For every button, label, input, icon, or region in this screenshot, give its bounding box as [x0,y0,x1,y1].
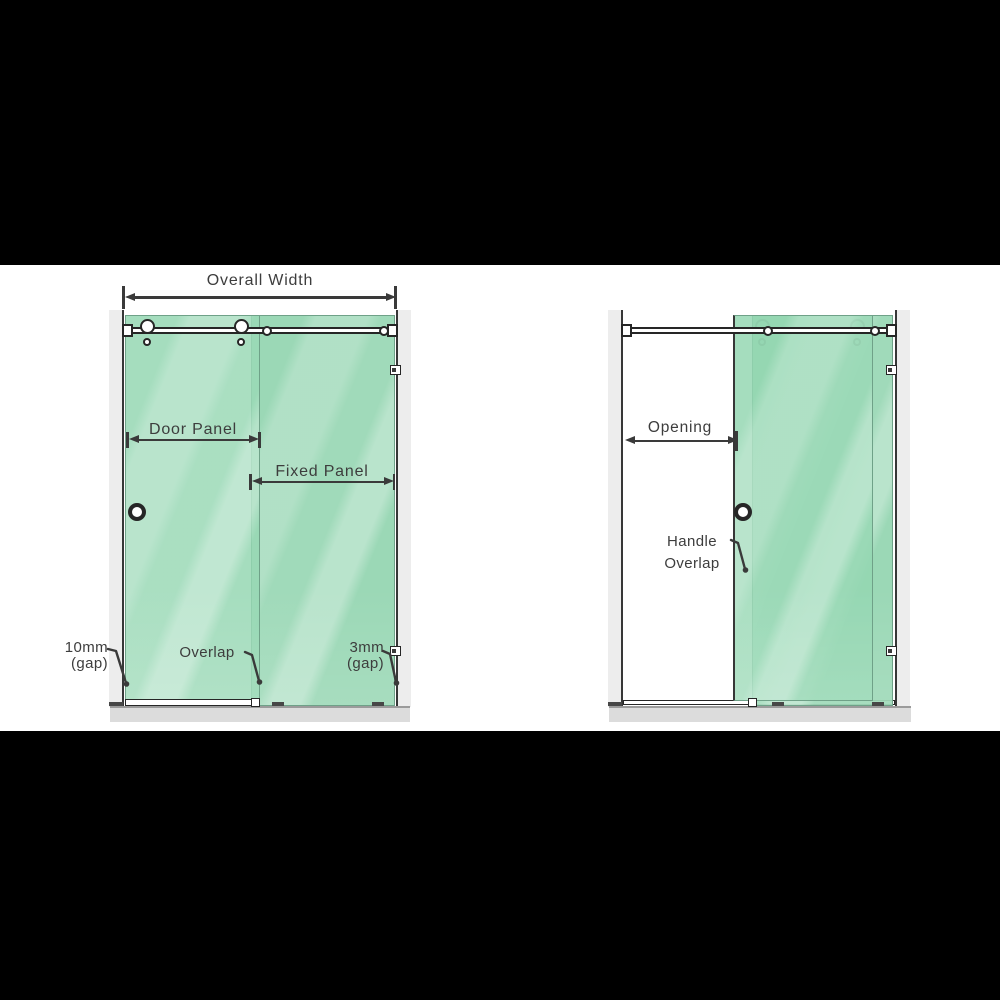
diagram-canvas: Overall Width Door Panel Fixed Panel 10m… [0,0,1000,1000]
white-stage [0,265,1000,731]
